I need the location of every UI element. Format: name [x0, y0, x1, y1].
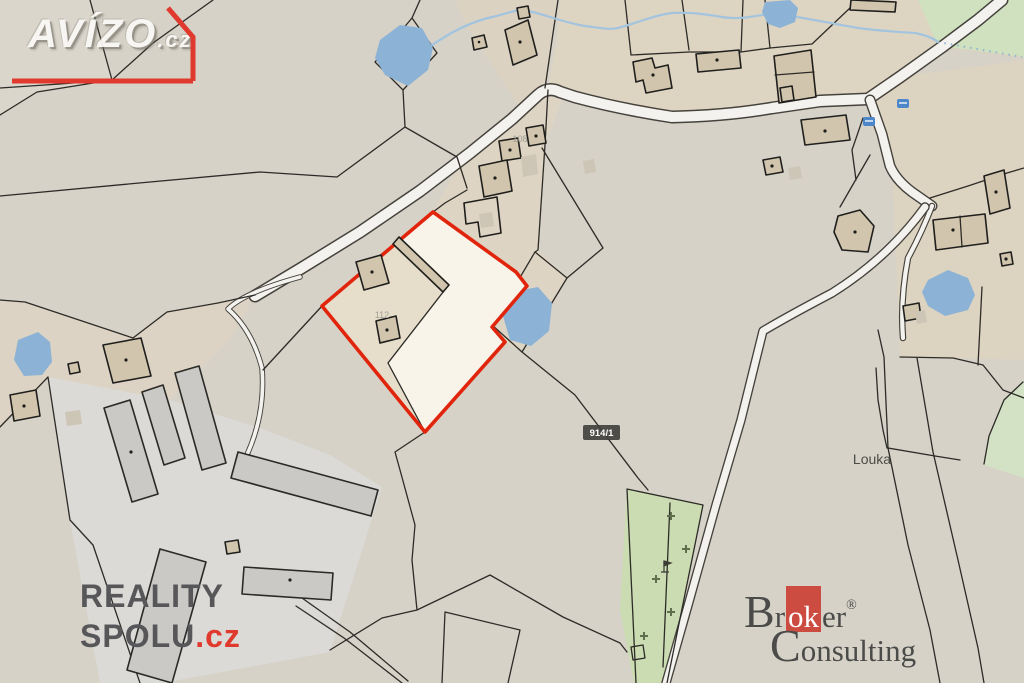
reality-spolu-frame — [0, 0, 210, 95]
pond — [375, 25, 433, 86]
reality-spolu-line2: SPOLU.cz — [80, 620, 241, 652]
building — [850, 0, 896, 12]
building — [780, 86, 794, 102]
building — [788, 166, 802, 180]
reality-spolu-tld: .cz — [195, 618, 241, 654]
building — [68, 362, 80, 374]
building — [696, 50, 741, 72]
building — [583, 159, 596, 174]
registered-mark: ® — [846, 598, 857, 613]
consulting-word: Consulting — [770, 623, 916, 669]
reality-spolu-watermark: REALITY SPOLU.cz — [80, 580, 241, 652]
building — [479, 212, 494, 228]
parcel-number-108: 108 — [512, 134, 527, 144]
building — [517, 6, 530, 19]
building — [242, 567, 333, 600]
building — [521, 154, 538, 177]
parcel-number-112: 112 — [375, 310, 389, 320]
bus-icon — [863, 117, 875, 126]
broker-consulting-watermark: Broker® Consulting — [744, 586, 916, 669]
reality-spolu-line1: REALITY — [80, 580, 241, 612]
bus-icon — [897, 99, 909, 108]
parcel-badge-text: 914/1 — [590, 428, 614, 439]
cadastral-map: 108 112 Louka 914/1 AVÍZO.cz REALITY SPO… — [0, 0, 1024, 683]
place-label-louka: Louka — [853, 451, 891, 467]
building — [225, 540, 240, 554]
building — [915, 310, 927, 324]
parcel-badge-914-1: 914/1 — [583, 425, 620, 440]
building — [65, 410, 82, 426]
